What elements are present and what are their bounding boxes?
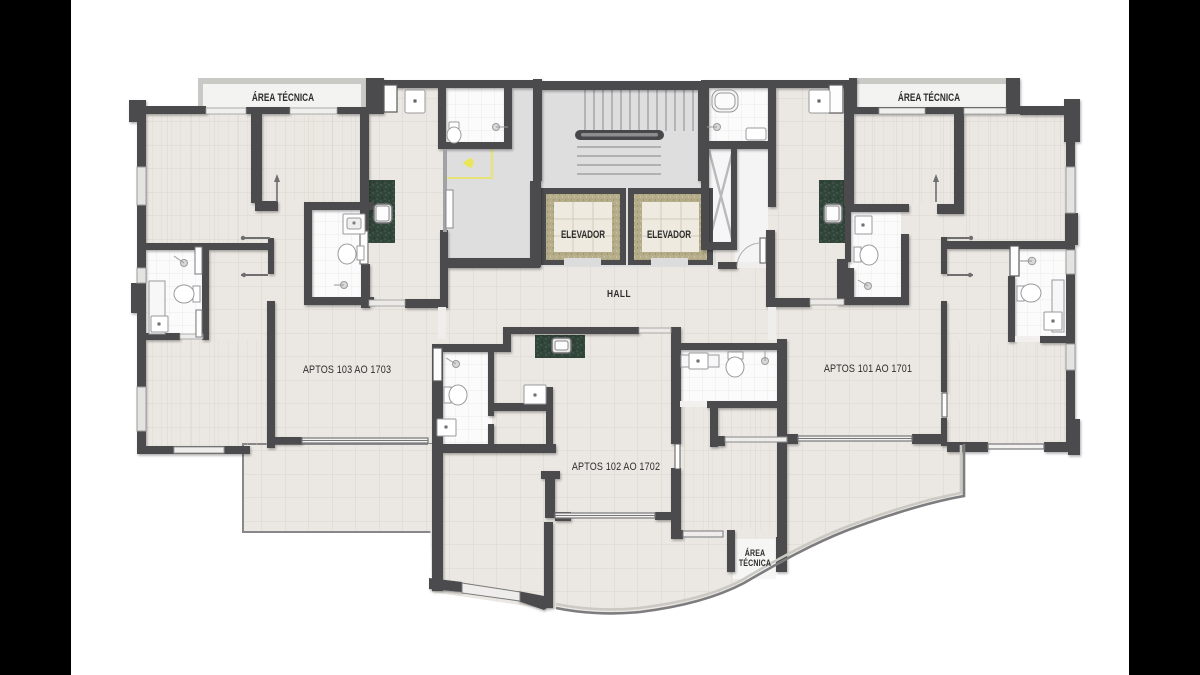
- svg-text:ÁREA TÉCNICA: ÁREA TÉCNICA: [252, 92, 314, 104]
- svg-text:HALL: HALL: [607, 287, 631, 299]
- svg-text:APTOS 102 AO 1702: APTOS 102 AO 1702: [572, 461, 660, 473]
- svg-text:APTOS 103 AO 1703: APTOS 103 AO 1703: [303, 364, 391, 376]
- svg-text:TÉCNICA: TÉCNICA: [739, 558, 771, 568]
- svg-text:ÁREA: ÁREA: [745, 548, 766, 558]
- svg-text:APTOS 101 AO 1701: APTOS 101 AO 1701: [824, 363, 912, 375]
- svg-text:ELEVADOR: ELEVADOR: [647, 228, 691, 240]
- svg-text:ÁREA TÉCNICA: ÁREA TÉCNICA: [898, 92, 960, 104]
- svg-text:ELEVADOR: ELEVADOR: [561, 228, 605, 240]
